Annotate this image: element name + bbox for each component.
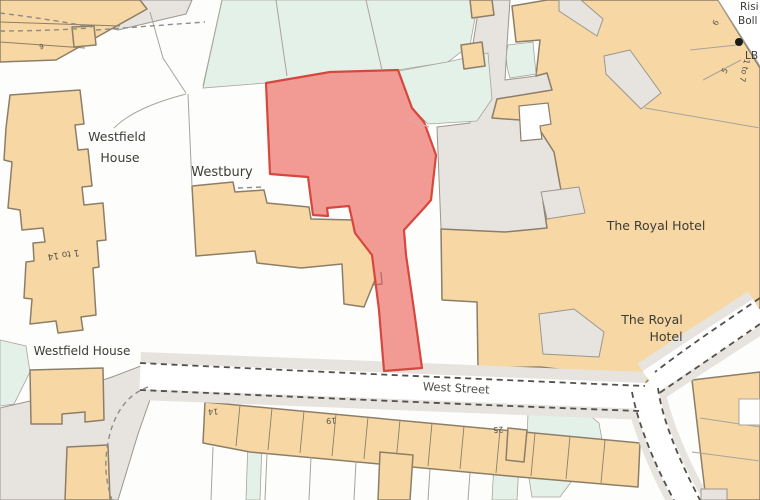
building-small-a	[461, 42, 485, 69]
label-westfield-house-top-1: Westfield	[88, 129, 146, 144]
label-num-19: 19	[326, 416, 337, 426]
label-num-25: 25	[493, 425, 504, 435]
parcel-green-pocket-2	[506, 42, 536, 78]
map-svg: Westfield House Westbury 1 to 14 Westfie…	[0, 0, 760, 500]
label-royal-hotel-bottom-1: The Royal	[620, 312, 683, 327]
label-edge-boll: Boll	[738, 15, 757, 27]
hotel-yard-1	[541, 187, 585, 219]
label-westfield-house-top-2: House	[100, 150, 139, 165]
label-westbury: Westbury	[191, 165, 253, 180]
building-bottom-mid-2	[506, 428, 527, 462]
label-royal-hotel-top: The Royal Hotel	[606, 218, 706, 233]
white-parcel-br	[739, 399, 760, 425]
label-westfield-house-bottom: Westfield House	[34, 344, 131, 358]
building-bottom-mid	[378, 452, 413, 500]
gray-parcel-br	[701, 489, 727, 500]
building-small-b	[470, 0, 494, 18]
map-canvas[interactable]: Westfield House Westbury 1 to 14 Westfie…	[0, 0, 760, 500]
label-edge-risi: Risi	[740, 1, 759, 13]
building-bottom-left-2	[65, 445, 110, 500]
label-royal-hotel-bottom-2: Hotel	[649, 329, 682, 344]
label-num-14: 14	[208, 407, 219, 417]
point-feature-dot	[735, 38, 743, 46]
